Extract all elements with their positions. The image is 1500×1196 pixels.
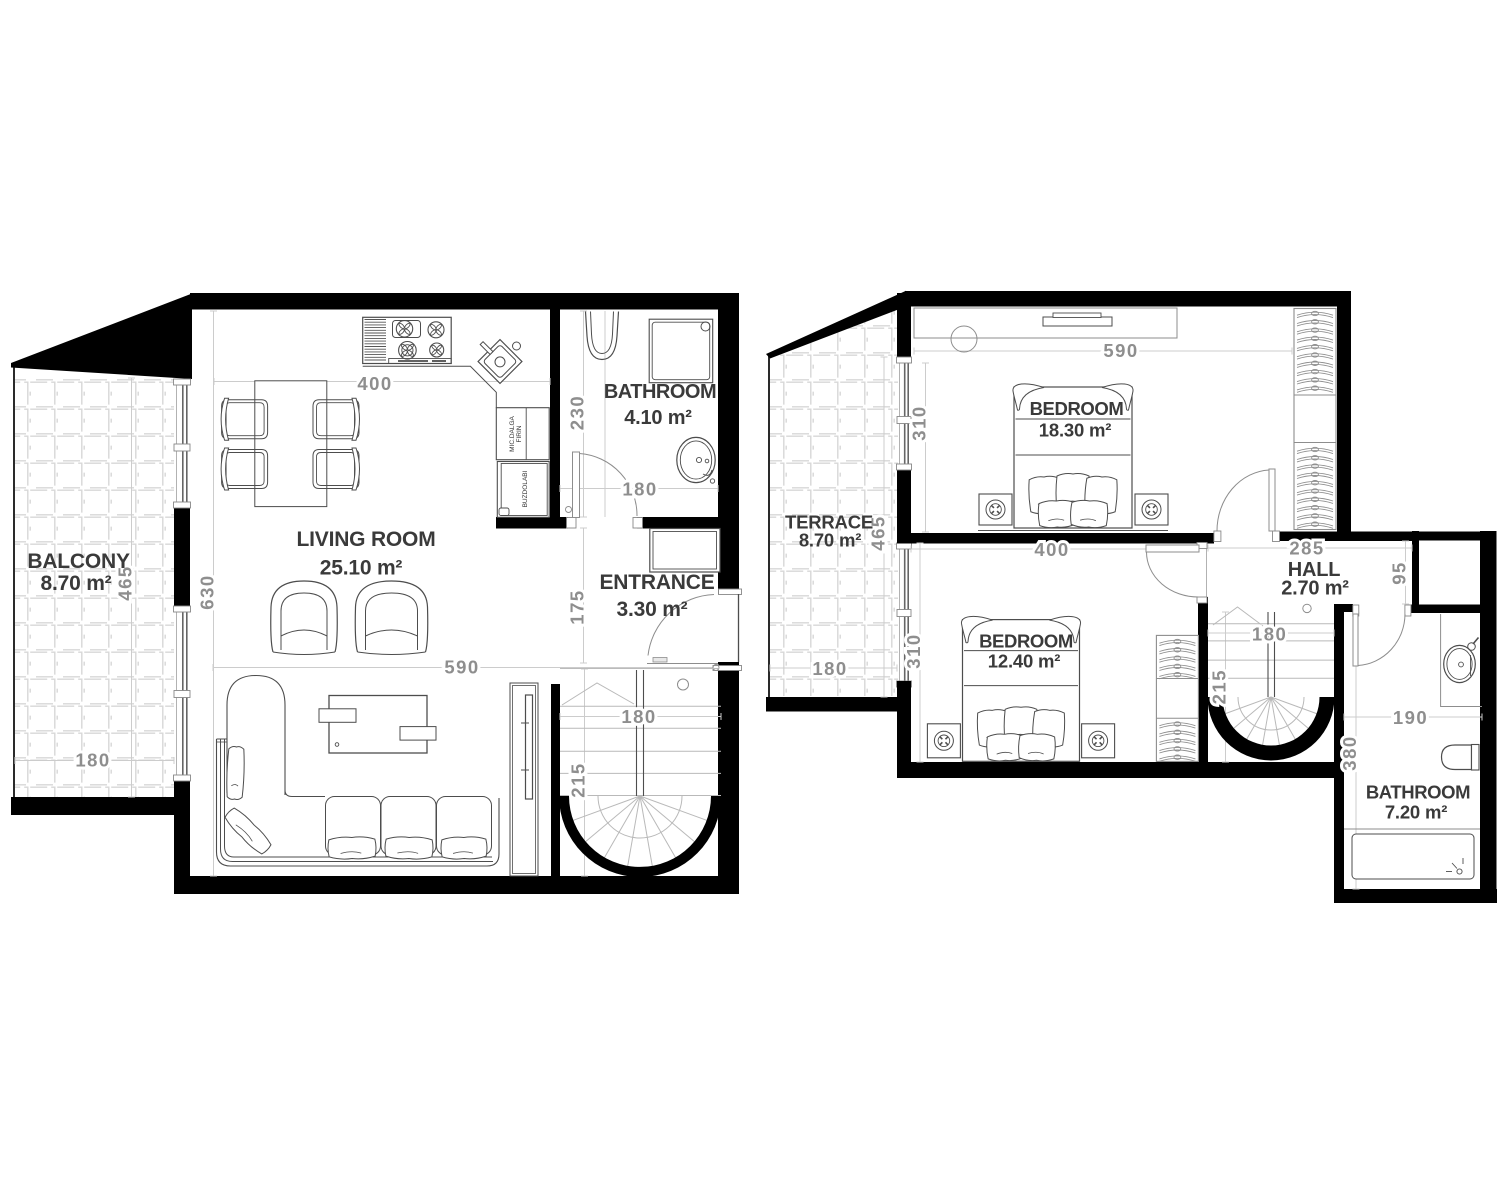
svg-text:175: 175	[567, 589, 588, 624]
svg-text:BEDROOM: BEDROOM	[979, 631, 1073, 652]
svg-text:ENTRANCE: ENTRANCE	[599, 571, 714, 594]
svg-text:380: 380	[1339, 735, 1360, 770]
svg-text:BATHROOM: BATHROOM	[1366, 782, 1470, 803]
svg-text:7.20 m²: 7.20 m²	[1385, 802, 1447, 823]
svg-text:BUZDOLABI: BUZDOLABI	[522, 470, 529, 507]
svg-text:400: 400	[1034, 539, 1069, 560]
svg-text:180: 180	[621, 706, 656, 727]
svg-text:630: 630	[197, 574, 218, 609]
svg-text:4.10 m²: 4.10 m²	[624, 407, 692, 429]
svg-text:310: 310	[903, 633, 924, 668]
svg-text:BALCONY: BALCONY	[27, 550, 130, 573]
svg-text:285: 285	[1289, 538, 1324, 559]
svg-text:LIVING ROOM: LIVING ROOM	[297, 528, 436, 551]
svg-text:12.40 m²: 12.40 m²	[988, 651, 1060, 672]
svg-text:8.70 m²: 8.70 m²	[41, 572, 112, 595]
svg-text:400: 400	[357, 373, 392, 394]
svg-text:BEDROOM: BEDROOM	[1030, 398, 1124, 419]
svg-text:25.10 m²: 25.10 m²	[320, 557, 403, 580]
svg-text:310: 310	[909, 405, 930, 440]
svg-text:180: 180	[622, 479, 657, 500]
svg-text:FIRIN: FIRIN	[516, 425, 523, 442]
svg-text:215: 215	[568, 762, 589, 797]
svg-text:180: 180	[812, 658, 847, 679]
svg-text:180: 180	[75, 750, 110, 771]
svg-text:BATHROOM: BATHROOM	[604, 381, 716, 403]
svg-text:MIC.DALGA: MIC.DALGA	[509, 415, 516, 451]
svg-text:590: 590	[444, 657, 479, 678]
svg-text:8.70 m²: 8.70 m²	[799, 530, 861, 551]
svg-text:2.70 m²: 2.70 m²	[1281, 578, 1349, 600]
svg-text:190: 190	[1393, 707, 1428, 728]
svg-text:95: 95	[1389, 561, 1410, 585]
svg-text:230: 230	[567, 395, 588, 430]
svg-text:215: 215	[1209, 669, 1230, 704]
svg-text:590: 590	[1103, 340, 1138, 361]
svg-text:180: 180	[1252, 624, 1287, 645]
svg-text:18.30 m²: 18.30 m²	[1039, 420, 1111, 441]
svg-text:3.30 m²: 3.30 m²	[617, 598, 688, 621]
